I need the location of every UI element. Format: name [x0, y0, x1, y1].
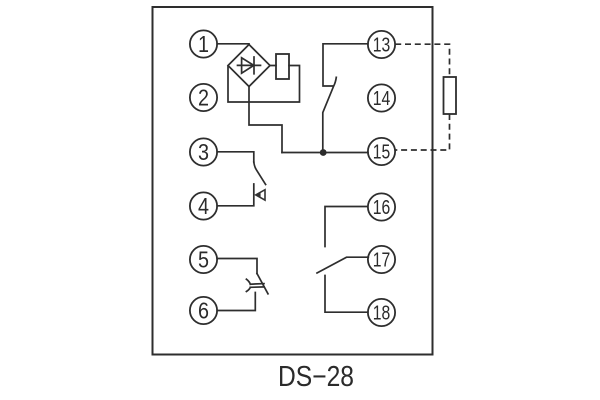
svg-text:18: 18: [373, 303, 391, 325]
svg-text:13: 13: [373, 35, 391, 57]
svg-text:2: 2: [198, 85, 209, 111]
svg-text:17: 17: [373, 250, 391, 272]
svg-text:5: 5: [198, 247, 209, 273]
svg-text:16: 16: [373, 197, 391, 219]
svg-text:4: 4: [198, 193, 209, 219]
svg-text:6: 6: [198, 298, 209, 324]
svg-text:15: 15: [373, 142, 391, 164]
svg-text:1: 1: [198, 31, 209, 57]
svg-text:DS−28: DS−28: [278, 361, 354, 393]
svg-text:3: 3: [198, 139, 209, 165]
svg-text:14: 14: [373, 88, 391, 110]
